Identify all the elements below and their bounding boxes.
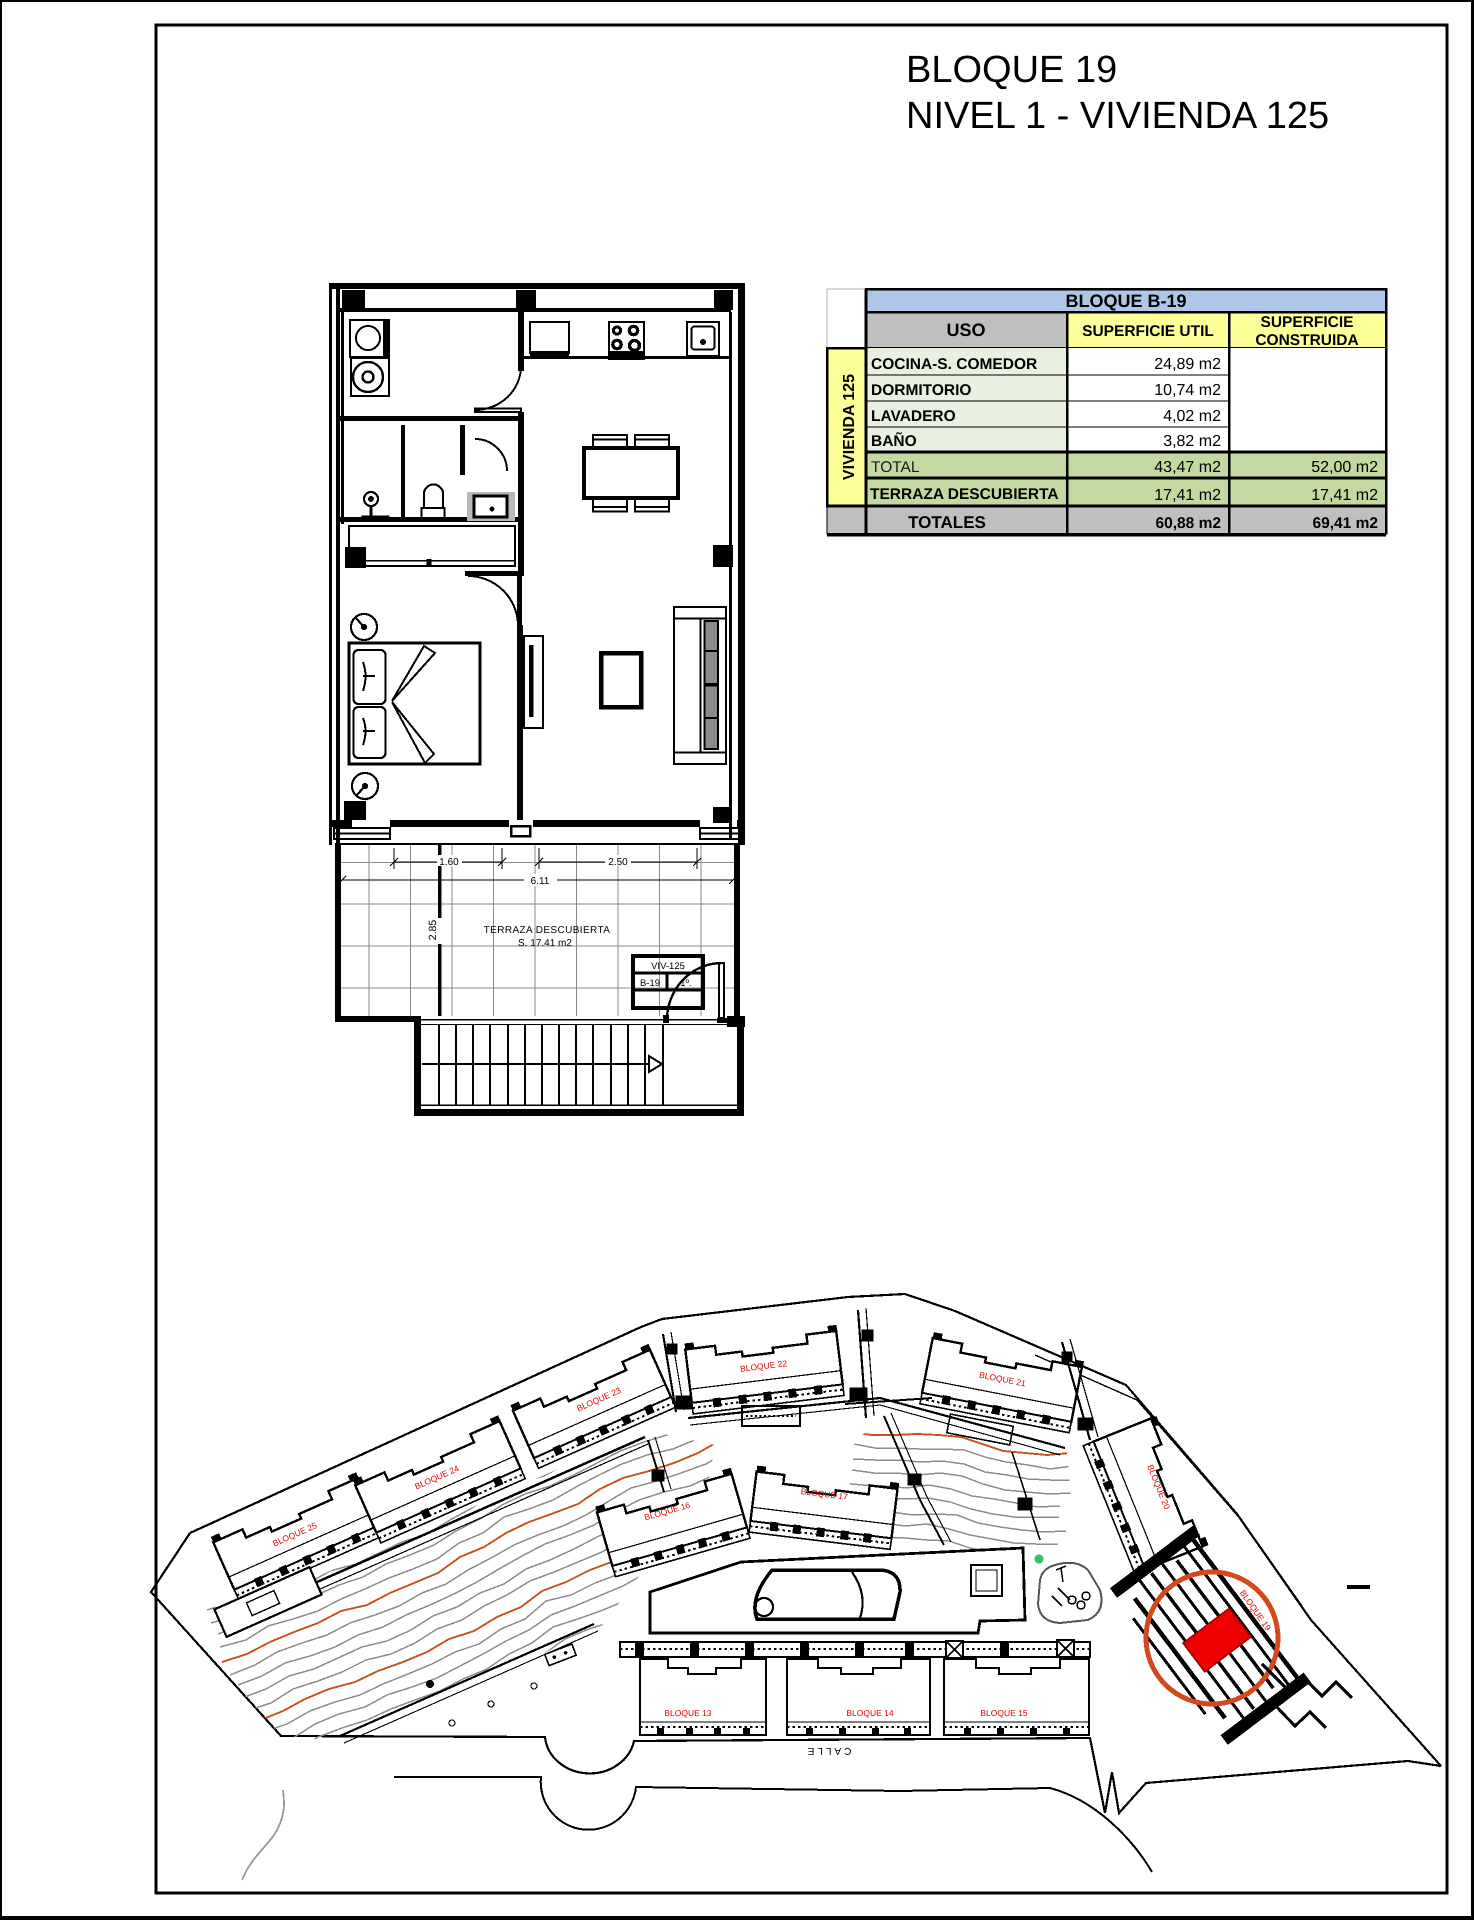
svg-text:60,88 m2: 60,88 m2	[1156, 515, 1222, 532]
svg-text:BLOQUE 14: BLOQUE 14	[846, 1708, 894, 1718]
svg-text:52,00 m2: 52,00 m2	[1311, 459, 1378, 476]
svg-text:2.50: 2.50	[608, 857, 628, 868]
svg-text:SUPERFICIE UTIL: SUPERFICIE UTIL	[1082, 323, 1214, 340]
svg-text:TERRAZA DESCUBIERTA: TERRAZA DESCUBIERTA	[870, 486, 1059, 503]
svg-text:B-19: B-19	[640, 978, 660, 989]
svg-text:BLOQUE 15: BLOQUE 15	[980, 1708, 1028, 1718]
svg-text:1.60: 1.60	[439, 857, 459, 868]
svg-text:BLOQUE 19: BLOQUE 19	[906, 49, 1117, 91]
svg-text:COCINA-S. COMEDOR: COCINA-S. COMEDOR	[871, 356, 1037, 373]
svg-text:TOTAL: TOTAL	[871, 459, 920, 476]
svg-text:TOTALES: TOTALES	[908, 513, 986, 532]
svg-text:BLOQUE 13: BLOQUE 13	[664, 1708, 712, 1718]
svg-text:USO: USO	[946, 320, 985, 340]
svg-text:NIVEL 1 - VIVIENDA 125: NIVEL 1 - VIVIENDA 125	[906, 95, 1329, 137]
svg-text:VIVIENDA 125: VIVIENDA 125	[841, 374, 858, 480]
svg-text:17,41 m2: 17,41 m2	[1311, 487, 1378, 504]
svg-text:TERRAZA DESCUBIERTA: TERRAZA DESCUBIERTA	[484, 925, 611, 936]
svg-text:4,02 m2: 4,02 m2	[1163, 408, 1221, 425]
svg-text:6.11: 6.11	[531, 876, 550, 887]
svg-text:CALLE: CALLE	[805, 1745, 852, 1756]
svg-text:2.85: 2.85	[427, 920, 439, 941]
svg-text:10,74 m2: 10,74 m2	[1154, 382, 1221, 399]
svg-text:BLOQUE B-19: BLOQUE B-19	[1065, 291, 1186, 311]
svg-text:24,89 m2: 24,89 m2	[1154, 356, 1221, 373]
svg-text:69,41 m2: 69,41 m2	[1313, 515, 1379, 532]
svg-text:BAÑO: BAÑO	[871, 432, 917, 450]
svg-text:43,47 m2: 43,47 m2	[1154, 459, 1221, 476]
svg-text:LAVADERO: LAVADERO	[871, 408, 956, 425]
svg-text:S. 17.41 m2: S. 17.41 m2	[518, 938, 572, 949]
svg-text:VIV-125: VIV-125	[651, 961, 685, 972]
svg-text:3,82 m2: 3,82 m2	[1163, 433, 1221, 450]
svg-text:SUPERFICIE: SUPERFICIE	[1260, 314, 1353, 331]
svg-text:DORMITORIO: DORMITORIO	[871, 382, 971, 399]
svg-text:CONSTRUIDA: CONSTRUIDA	[1255, 332, 1358, 349]
svg-text:17,41 m2: 17,41 m2	[1154, 487, 1221, 504]
